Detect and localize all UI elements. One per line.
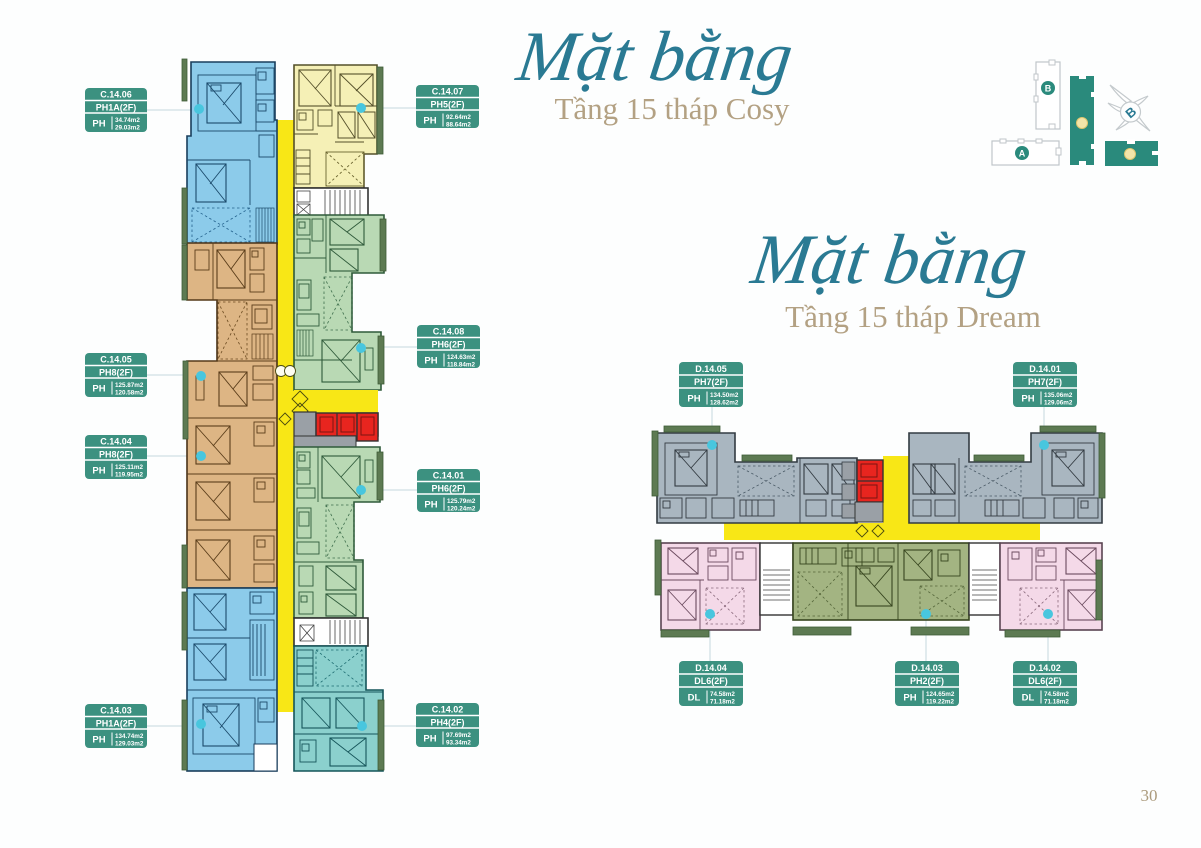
svg-text:PH: PH [92,735,105,746]
svg-text:125.11m2: 125.11m2 [115,464,144,471]
svg-text:PH: PH [424,500,437,511]
svg-text:124.63m2: 124.63m2 [447,354,476,361]
svg-text:DL6(2F): DL6(2F) [694,676,728,686]
svg-text:88.64m2: 88.64m2 [446,122,471,129]
svg-text:134.50m2: 134.50m2 [710,392,739,399]
svg-text:PH: PH [92,466,105,477]
svg-text:C.14.04: C.14.04 [100,437,132,447]
svg-text:74.58m2: 74.58m2 [710,691,735,698]
svg-text:PH: PH [424,356,437,367]
svg-text:Tầng 15 tháp Dream: Tầng 15 tháp Dream [785,299,1041,334]
svg-text:124.65m2: 124.65m2 [926,691,955,698]
svg-text:34.74m2: 34.74m2 [115,117,140,124]
svg-text:PH8(2F): PH8(2F) [99,368,133,378]
svg-text:PH: PH [903,693,916,704]
svg-text:29.03m2: 29.03m2 [115,125,140,132]
svg-text:PH5(2F): PH5(2F) [430,100,464,110]
svg-text:PH4(2F): PH4(2F) [430,718,464,728]
svg-text:C.14.06: C.14.06 [100,90,132,100]
svg-text:D.14.03: D.14.03 [911,663,943,673]
svg-text:PH: PH [687,394,700,405]
svg-text:PH8(2F): PH8(2F) [99,450,133,460]
svg-text:74.58m2: 74.58m2 [1044,691,1069,698]
svg-text:DL: DL [1022,693,1035,704]
svg-text:125.79m2: 125.79m2 [447,498,476,505]
svg-text:119.95m2: 119.95m2 [115,472,144,479]
svg-text:135.06m2: 135.06m2 [1044,392,1073,399]
svg-text:125.87m2: 125.87m2 [115,382,144,389]
svg-text:C.14.02: C.14.02 [432,705,464,715]
svg-text:30: 30 [1141,786,1158,805]
svg-text:D.14.01: D.14.01 [1029,364,1061,374]
svg-text:71.18m2: 71.18m2 [1044,699,1069,706]
svg-text:PH1A(2F): PH1A(2F) [96,103,137,113]
svg-text:93.34m2: 93.34m2 [446,740,471,747]
svg-text:129.06m2: 129.06m2 [1044,400,1073,407]
svg-text:PH7(2F): PH7(2F) [694,377,728,387]
svg-text:PH: PH [423,734,436,745]
svg-text:C.14.01: C.14.01 [433,471,465,481]
svg-text:C.14.03: C.14.03 [100,706,132,716]
svg-text:120.58m2: 120.58m2 [115,390,144,397]
svg-text:PH7(2F): PH7(2F) [1028,377,1062,387]
svg-text:PH6(2F): PH6(2F) [431,340,465,350]
svg-text:134.74m2: 134.74m2 [115,733,144,740]
svg-text:C.14.05: C.14.05 [100,355,132,365]
svg-text:92.64m2: 92.64m2 [446,114,471,121]
svg-text:C.14.07: C.14.07 [432,87,464,97]
svg-text:128.62m2: 128.62m2 [710,400,739,407]
svg-text:Mặt bằng: Mặt bằng [512,17,798,96]
svg-text:97.69m2: 97.69m2 [446,732,471,739]
svg-text:Mặt bằng: Mặt bằng [746,220,1032,299]
svg-text:PH: PH [1021,394,1034,405]
svg-text:PH: PH [92,384,105,395]
svg-text:D.14.02: D.14.02 [1029,663,1061,673]
svg-text:C.14.08: C.14.08 [433,327,465,337]
svg-text:DL: DL [688,693,701,704]
svg-text:B: B [1045,84,1052,94]
svg-text:PH6(2F): PH6(2F) [431,484,465,494]
svg-text:D.14.05: D.14.05 [695,364,727,374]
svg-text:71.18m2: 71.18m2 [710,699,735,706]
svg-text:A: A [1019,149,1026,159]
svg-text:DL6(2F): DL6(2F) [1028,676,1062,686]
svg-text:Tầng 15 tháp Cosy: Tầng 15 tháp Cosy [554,91,790,126]
svg-text:PH2(2F): PH2(2F) [910,676,944,686]
svg-text:120.24m2: 120.24m2 [447,506,476,513]
svg-text:129.03m2: 129.03m2 [115,741,144,748]
svg-text:118.84m2: 118.84m2 [447,362,476,369]
svg-text:PH: PH [92,119,105,130]
svg-text:PH1A(2F): PH1A(2F) [96,719,137,729]
svg-text:PH: PH [423,116,436,127]
svg-text:D.14.04: D.14.04 [695,663,727,673]
svg-text:119.22m2: 119.22m2 [926,699,955,706]
